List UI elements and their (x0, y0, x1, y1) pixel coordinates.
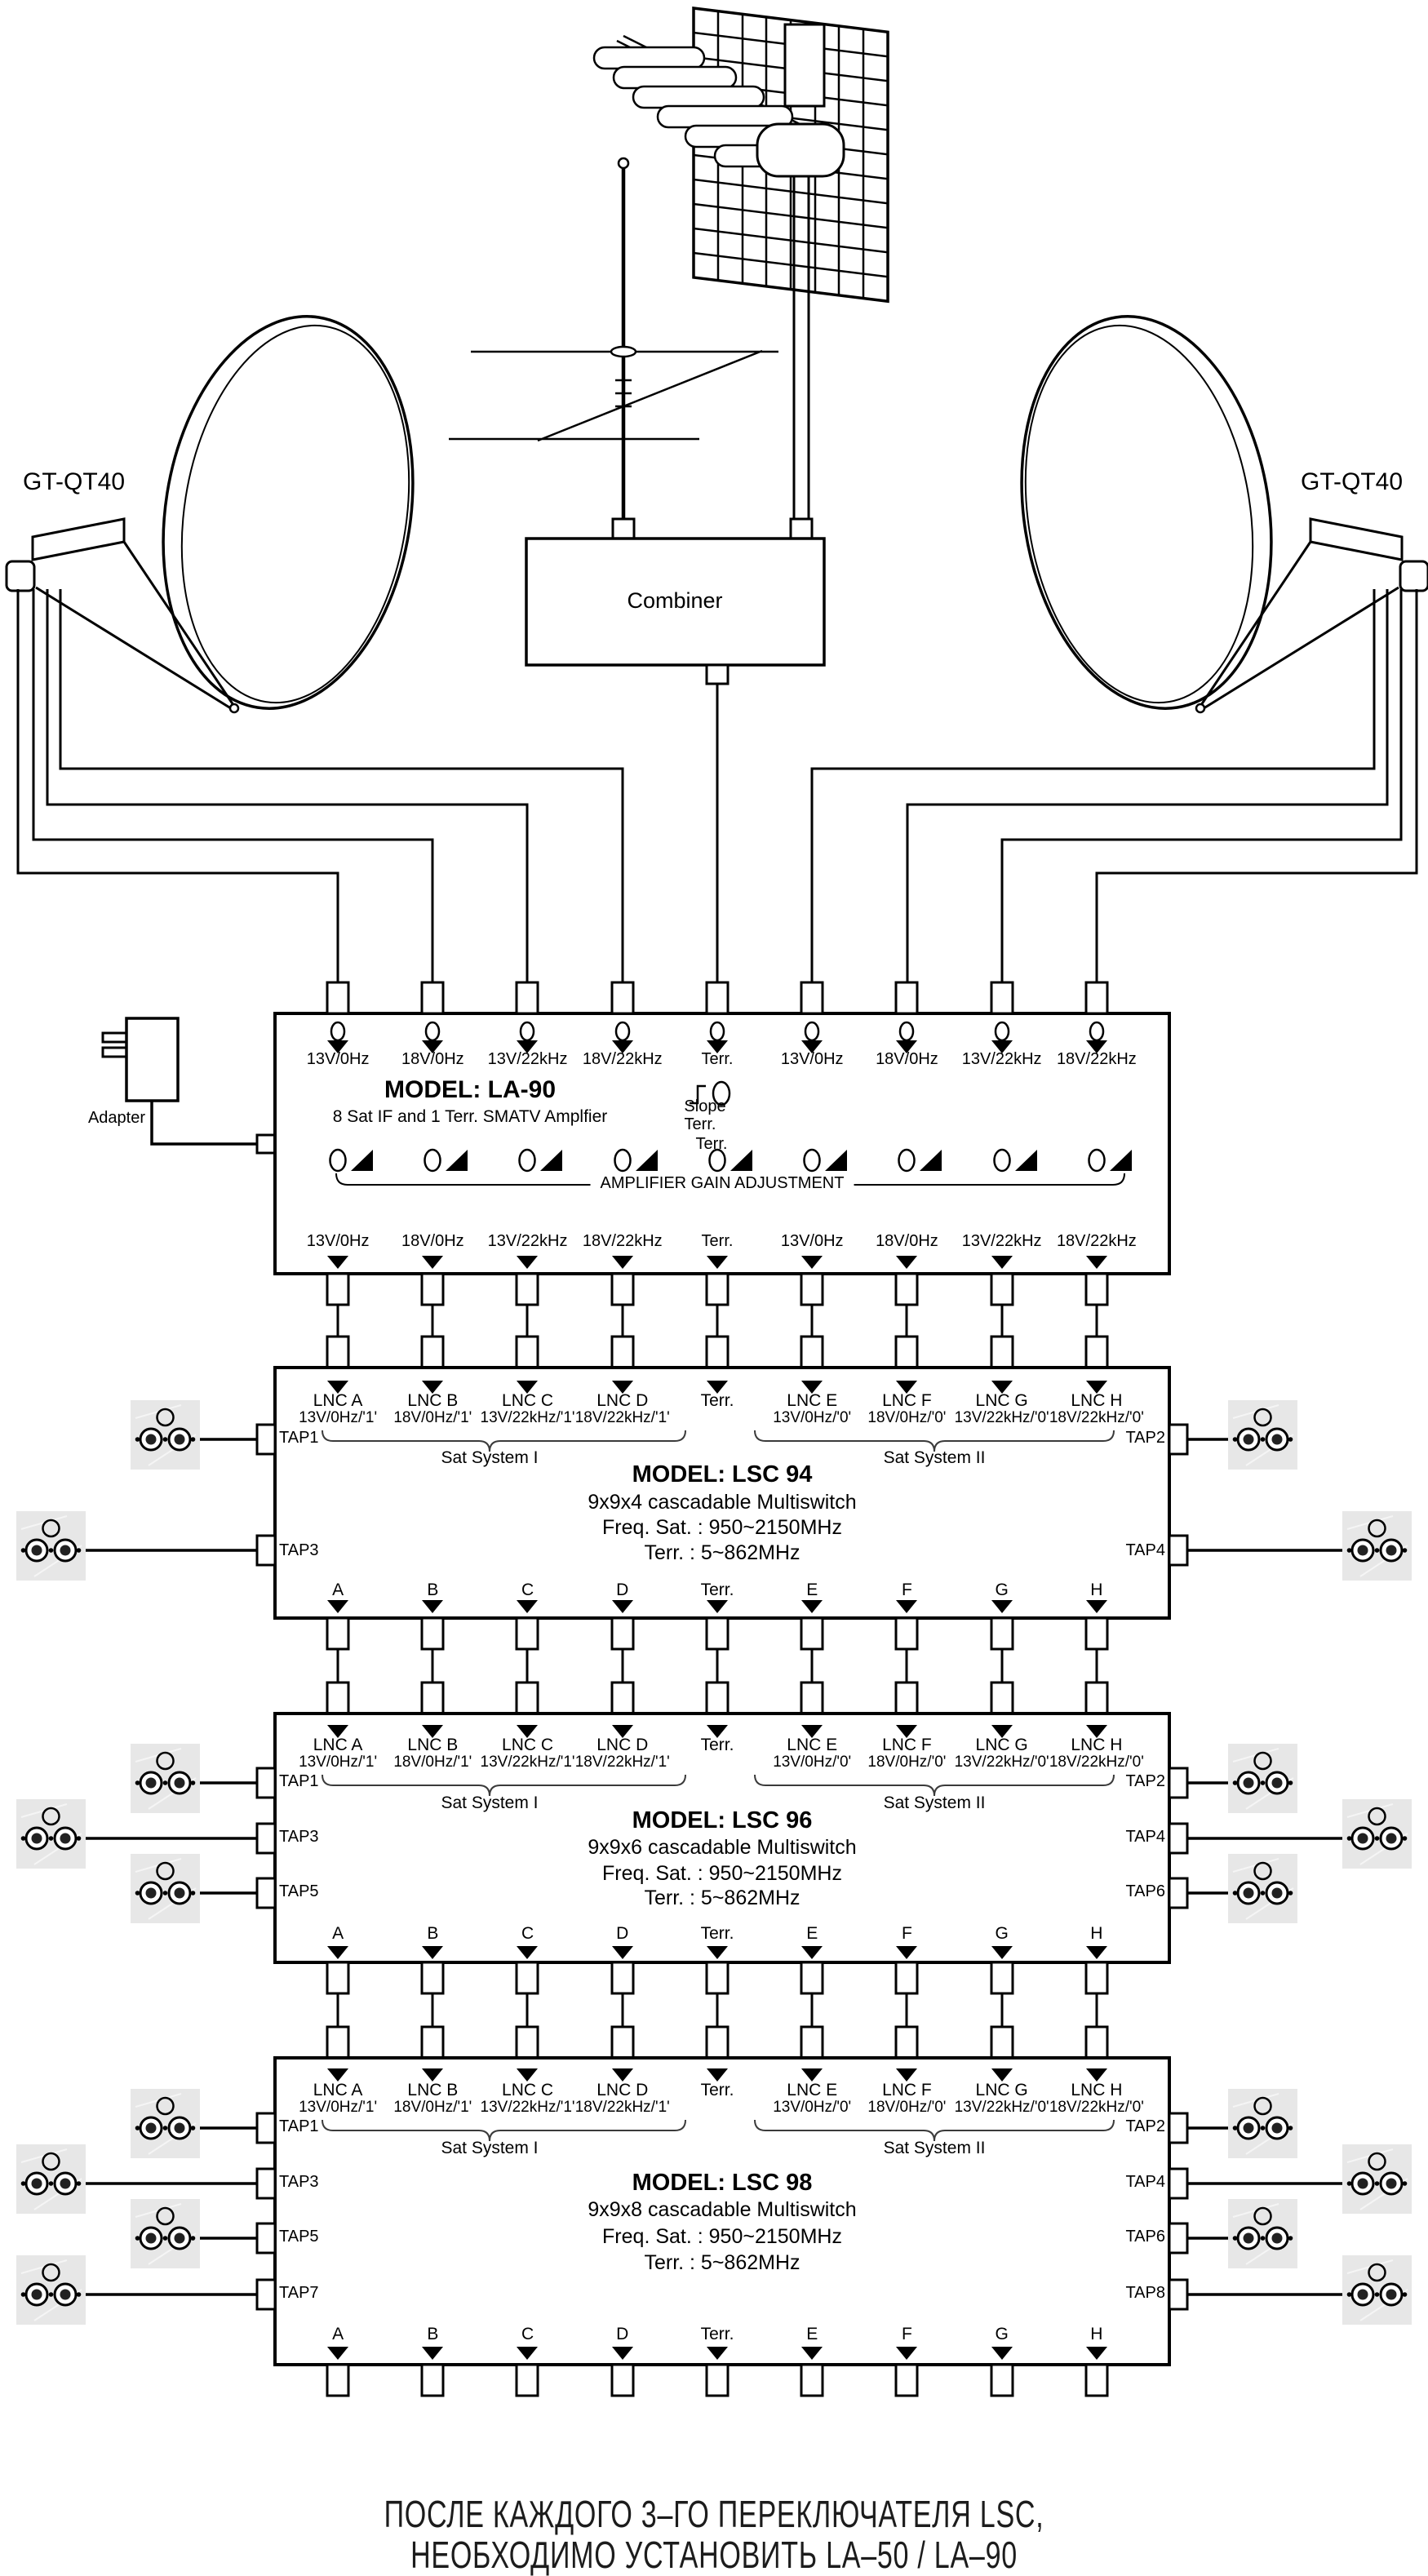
output-label: G (955, 1925, 1049, 1942)
output-label: H (1049, 1581, 1144, 1598)
input-label: 13V/22kHz (480, 1051, 574, 1067)
output-label: E (765, 2325, 859, 2343)
input-label: 18V/0Hz (385, 1051, 480, 1067)
lsc96-to-lsc98-wires (338, 1993, 1097, 2027)
input-mode: 13V/22kHz/'0' (955, 1410, 1049, 1425)
tap-label: TAP3 (279, 1829, 319, 1845)
lsc96-input-modes: 13V/0Hz/'1' 18V/0Hz/'1' 13V/22kHz/'1' 18… (290, 1754, 1144, 1770)
output-label: 18V/22kHz (1049, 1233, 1144, 1249)
input-label: LNC F (859, 1736, 954, 1754)
lsc94-output-labels: A B C D Terr. E F G H (290, 1581, 1144, 1598)
input-mode: 13V/0Hz/'1' (290, 2099, 385, 2115)
input-mode: 18V/22kHz/'0' (1049, 1754, 1144, 1770)
output-label: 13V/22kHz (480, 1233, 574, 1249)
output-label: 18V/0Hz (859, 1233, 954, 1249)
input-mode: 13V/22kHz/'1' (480, 1754, 574, 1770)
lsc94-model: MODEL: LSC 94 (632, 1463, 813, 1487)
la90-model: MODEL: LA-90 (384, 1078, 556, 1102)
output-label: E (765, 1581, 859, 1598)
input-mode: 13V/22kHz/'0' (955, 1754, 1049, 1770)
lsc96-output-labels: A B C D Terr. E F G H (290, 1925, 1144, 1942)
output-label: B (385, 1925, 480, 1942)
input-mode: 18V/0Hz/'0' (859, 1410, 954, 1425)
output-label: G (955, 2325, 1049, 2343)
tap-label: TAP7 (279, 2285, 319, 2301)
lsc96-type: 9x9x6 cascadable Multiswitch (588, 1838, 856, 1858)
smatv-wiring-diagram: GT-QT40 GT-QT40 Combiner Adapter 13V/0Hz… (0, 0, 1428, 2576)
output-label: F (859, 1581, 954, 1598)
tap-label: TAP4 (1125, 2174, 1165, 2190)
lsc98-model: MODEL: LSC 98 (632, 2171, 813, 2195)
output-label: D (575, 1581, 670, 1598)
input-label: LNC C (480, 1392, 574, 1409)
input-mode (670, 2099, 765, 2115)
tap-label: TAP4 (1125, 1829, 1165, 1845)
output-label: 18V/0Hz (385, 1233, 480, 1249)
input-label: LNC A (290, 1392, 385, 1409)
input-mode: 18V/22kHz/'0' (1049, 1410, 1144, 1425)
output-label: Terr. (670, 1925, 765, 1942)
sat-system-1-label: Sat System I (441, 1449, 538, 1466)
input-mode: 13V/0Hz/'1' (290, 1410, 385, 1425)
input-mode: 18V/22kHz/'1' (575, 1410, 670, 1425)
input-mode: 18V/0Hz/'1' (385, 1410, 480, 1425)
lsc96-model: MODEL: LSC 96 (632, 1809, 813, 1833)
input-label: Terr. (670, 1736, 765, 1754)
gain-caption: AMPLIFIER GAIN ADJUSTMENT (591, 1175, 854, 1191)
output-label: 13V/22kHz (955, 1233, 1049, 1249)
lsc94-terr-range: Terr. : 5~862MHz (644, 1543, 800, 1563)
output-label: 13V/0Hz (290, 1233, 385, 1249)
tap-label: TAP2 (1125, 1430, 1165, 1446)
input-label: LNC E (765, 1736, 859, 1754)
lsc94-input-modes: 13V/0Hz/'1' 18V/0Hz/'1' 13V/22kHz/'1' 18… (290, 1410, 1144, 1425)
input-label: 18V/0Hz (859, 1051, 954, 1067)
adapter-label: Adapter (88, 1110, 145, 1126)
dish-label-right: GT-QT40 (1301, 470, 1403, 494)
output-label: D (575, 1925, 670, 1942)
input-label: LNC F (859, 2082, 954, 2099)
input-mode: 13V/22kHz/'0' (955, 2099, 1049, 2115)
tap-label: TAP2 (1125, 1773, 1165, 1789)
output-label: C (480, 1581, 574, 1598)
lsc96-sat-range: Freq. Sat. : 950~2150MHz (602, 1864, 842, 1884)
input-label: LNC D (575, 1392, 670, 1409)
output-label: 18V/22kHz (575, 1233, 670, 1249)
output-label: E (765, 1925, 859, 1942)
input-label: Terr. (670, 1392, 765, 1409)
input-label: LNC E (765, 1392, 859, 1409)
footer-note-line1: ПОСЛЕ КАЖДОГО 3–ГО ПЕРЕКЛЮЧАТЕЛЯ LSC, (384, 2495, 1044, 2533)
input-label: LNC G (955, 1736, 1049, 1754)
output-label: A (290, 2325, 385, 2343)
output-label: H (1049, 2325, 1144, 2343)
lsc94-type: 9x9x4 cascadable Multiswitch (588, 1492, 856, 1513)
output-label: A (290, 1925, 385, 1942)
la90-output-connectors (327, 1274, 1107, 1305)
tap-label: TAP5 (279, 1883, 319, 1900)
slope-terr-label: Terr. (685, 1116, 716, 1133)
output-label: F (859, 1925, 954, 1942)
input-label: LNC A (290, 1736, 385, 1754)
power-adapter (103, 1018, 275, 1153)
lsc94-sat-range: Freq. Sat. : 950~2150MHz (602, 1518, 842, 1538)
tap-label: TAP6 (1125, 1883, 1165, 1900)
input-label: LNC B (385, 1392, 480, 1409)
output-label: A (290, 1581, 385, 1598)
tap-label: TAP1 (279, 1430, 319, 1446)
tap-label: TAP8 (1125, 2285, 1165, 2301)
input-mode: 18V/0Hz/'0' (859, 2099, 954, 2115)
lsc98-sat-range: Freq. Sat. : 950~2150MHz (602, 2227, 842, 2247)
input-label: 13V/22kHz (955, 1051, 1049, 1067)
dish-label-left: GT-QT40 (23, 470, 125, 494)
input-label: LNC G (955, 1392, 1049, 1409)
output-label: C (480, 1925, 574, 1942)
input-label: LNC D (575, 1736, 670, 1754)
tap-label: TAP3 (279, 1542, 319, 1558)
input-label: LNC C (480, 1736, 574, 1754)
input-mode: 18V/22kHz/'1' (575, 2099, 670, 2115)
output-label: H (1049, 1925, 1144, 1942)
lsc98-input-modes: 13V/0Hz/'1' 18V/0Hz/'1' 13V/22kHz/'1' 18… (290, 2099, 1144, 2115)
input-mode: 13V/22kHz/'1' (480, 2099, 574, 2115)
output-label: B (385, 2325, 480, 2343)
input-mode (670, 1410, 765, 1425)
input-label: 18V/22kHz (1049, 1051, 1144, 1067)
lsc94-input-names: LNC A LNC B LNC C LNC D Terr. LNC E LNC … (290, 1392, 1144, 1409)
input-mode: 13V/0Hz/'0' (765, 2099, 859, 2115)
input-label: LNC A (290, 2082, 385, 2099)
input-label: 18V/22kHz (575, 1051, 670, 1067)
output-label: G (955, 1581, 1049, 1598)
input-label: LNC D (575, 2082, 670, 2099)
sat-system-1-label: Sat System I (441, 1794, 538, 1811)
sat-system-2-label: Sat System II (884, 1449, 986, 1466)
input-mode: 13V/22kHz/'1' (480, 1410, 574, 1425)
la90-to-lsc94-wires (338, 1305, 1097, 1338)
tap-label: TAP4 (1125, 1542, 1165, 1558)
input-mode: 18V/22kHz/'1' (575, 1754, 670, 1770)
input-mode (670, 1754, 765, 1770)
la90-subtitle: 8 Sat IF and 1 Terr. SMATV Amplfier (333, 1108, 608, 1125)
lsc98-type: 9x9x8 cascadable Multiswitch (588, 2200, 856, 2220)
input-label: LNC F (859, 1392, 954, 1409)
la90-input-labels: 13V/0Hz 18V/0Hz 13V/22kHz 18V/22kHz Terr… (290, 1051, 1144, 1067)
sat-system-2-label: Sat System II (884, 2139, 986, 2157)
lsc94-to-lsc96-wires (338, 1649, 1097, 1683)
input-label: LNC H (1049, 1392, 1144, 1409)
input-label: LNC B (385, 2082, 480, 2099)
lsc98-output-labels: A B C D Terr. E F G H (290, 2325, 1144, 2343)
footer-note-line2: НЕОБХОДИМО УСТАНОВИТЬ LA–50 / LA–90 (410, 2536, 1018, 2574)
lsc96-terr-range: Terr. : 5~862MHz (644, 1888, 800, 1909)
tap-label: TAP6 (1125, 2228, 1165, 2245)
combiner-label: Combiner (627, 590, 722, 612)
output-label: Terr. (670, 2325, 765, 2343)
lsc96-input-names: LNC A LNC B LNC C LNC D Terr. LNC E LNC … (290, 1736, 1144, 1754)
lsc98-terr-range: Terr. : 5~862MHz (644, 2253, 800, 2273)
gain-terr-label: Terr. (696, 1136, 728, 1152)
input-label: LNC H (1049, 1736, 1144, 1754)
input-label: LNC E (765, 2082, 859, 2099)
tap-label: TAP5 (279, 2228, 319, 2245)
input-mode: 18V/0Hz/'0' (859, 1754, 954, 1770)
la90-output-labels: 13V/0Hz 18V/0Hz 13V/22kHz 18V/22kHz Terr… (290, 1233, 1144, 1249)
output-label: F (859, 2325, 954, 2343)
tap-label: TAP1 (279, 2118, 319, 2135)
input-mode: 18V/0Hz/'1' (385, 1754, 480, 1770)
input-label: 13V/0Hz (765, 1051, 859, 1067)
input-label: 13V/0Hz (290, 1051, 385, 1067)
input-mode: 13V/0Hz/'0' (765, 1410, 859, 1425)
output-label: C (480, 2325, 574, 2343)
input-label: LNC B (385, 1736, 480, 1754)
satellite-dish-right (812, 299, 1428, 982)
tap-label: TAP3 (279, 2174, 319, 2190)
input-label: Terr. (670, 2082, 765, 2099)
output-label: 13V/0Hz (765, 1233, 859, 1249)
lsc98-input-names: LNC A LNC B LNC C LNC D Terr. LNC E LNC … (290, 2082, 1144, 2099)
output-label: Terr. (670, 1581, 765, 1598)
sat-system-2-label: Sat System II (884, 1794, 986, 1811)
output-label: Terr. (670, 1233, 765, 1249)
slope-label: Slope (684, 1098, 725, 1115)
input-label: LNC H (1049, 2082, 1144, 2099)
tap-label: TAP2 (1125, 2118, 1165, 2135)
sat-system-1-label: Sat System I (441, 2139, 538, 2157)
input-label: LNC C (480, 2082, 574, 2099)
input-mode: 18V/22kHz/'0' (1049, 2099, 1144, 2115)
input-label: LNC G (955, 2082, 1049, 2099)
input-mode: 13V/0Hz/'0' (765, 1754, 859, 1770)
input-mode: 18V/0Hz/'1' (385, 2099, 480, 2115)
tap-label: TAP1 (279, 1773, 319, 1789)
input-mode: 13V/0Hz/'1' (290, 1754, 385, 1770)
terrestrial-antenna (594, 8, 888, 519)
la90-input-connectors (327, 982, 1107, 1013)
output-label: B (385, 1581, 480, 1598)
output-label: D (575, 2325, 670, 2343)
input-label: Terr. (670, 1051, 765, 1067)
